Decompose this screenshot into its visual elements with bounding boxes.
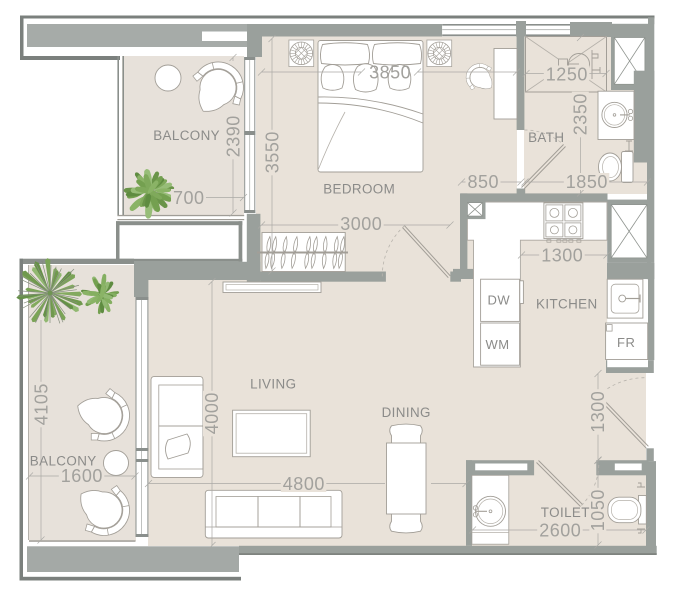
svg-text:TOILET: TOILET (541, 505, 590, 520)
svg-text:1850: 1850 (566, 172, 608, 192)
svg-text:1300: 1300 (588, 391, 608, 433)
svg-text:DW: DW (488, 293, 511, 308)
svg-text:1600: 1600 (61, 466, 103, 486)
svg-text:2350: 2350 (571, 93, 591, 135)
svg-text:BEDROOM: BEDROOM (323, 181, 395, 196)
svg-text:BATH: BATH (528, 130, 564, 145)
svg-text:4000: 4000 (202, 392, 222, 434)
svg-text:4800: 4800 (283, 474, 325, 494)
svg-text:DINING: DINING (382, 405, 431, 420)
svg-text:LIVING: LIVING (250, 376, 296, 391)
svg-text:2600: 2600 (539, 520, 581, 540)
svg-text:KITCHEN: KITCHEN (536, 296, 598, 311)
svg-text:850: 850 (468, 172, 500, 192)
svg-text:WM: WM (486, 337, 510, 352)
svg-text:3000: 3000 (340, 214, 382, 234)
svg-text:FR: FR (617, 335, 635, 350)
svg-text:4105: 4105 (31, 383, 51, 425)
svg-text:3550: 3550 (262, 131, 282, 173)
svg-text:2390: 2390 (223, 115, 243, 157)
svg-text:1250: 1250 (546, 64, 588, 84)
svg-text:BALCONY: BALCONY (153, 128, 220, 143)
svg-text:700: 700 (173, 188, 205, 208)
svg-text:3850: 3850 (369, 62, 411, 82)
svg-text:1050: 1050 (588, 489, 608, 531)
svg-text:1300: 1300 (541, 245, 583, 265)
svg-text:BALCONY: BALCONY (30, 453, 97, 468)
